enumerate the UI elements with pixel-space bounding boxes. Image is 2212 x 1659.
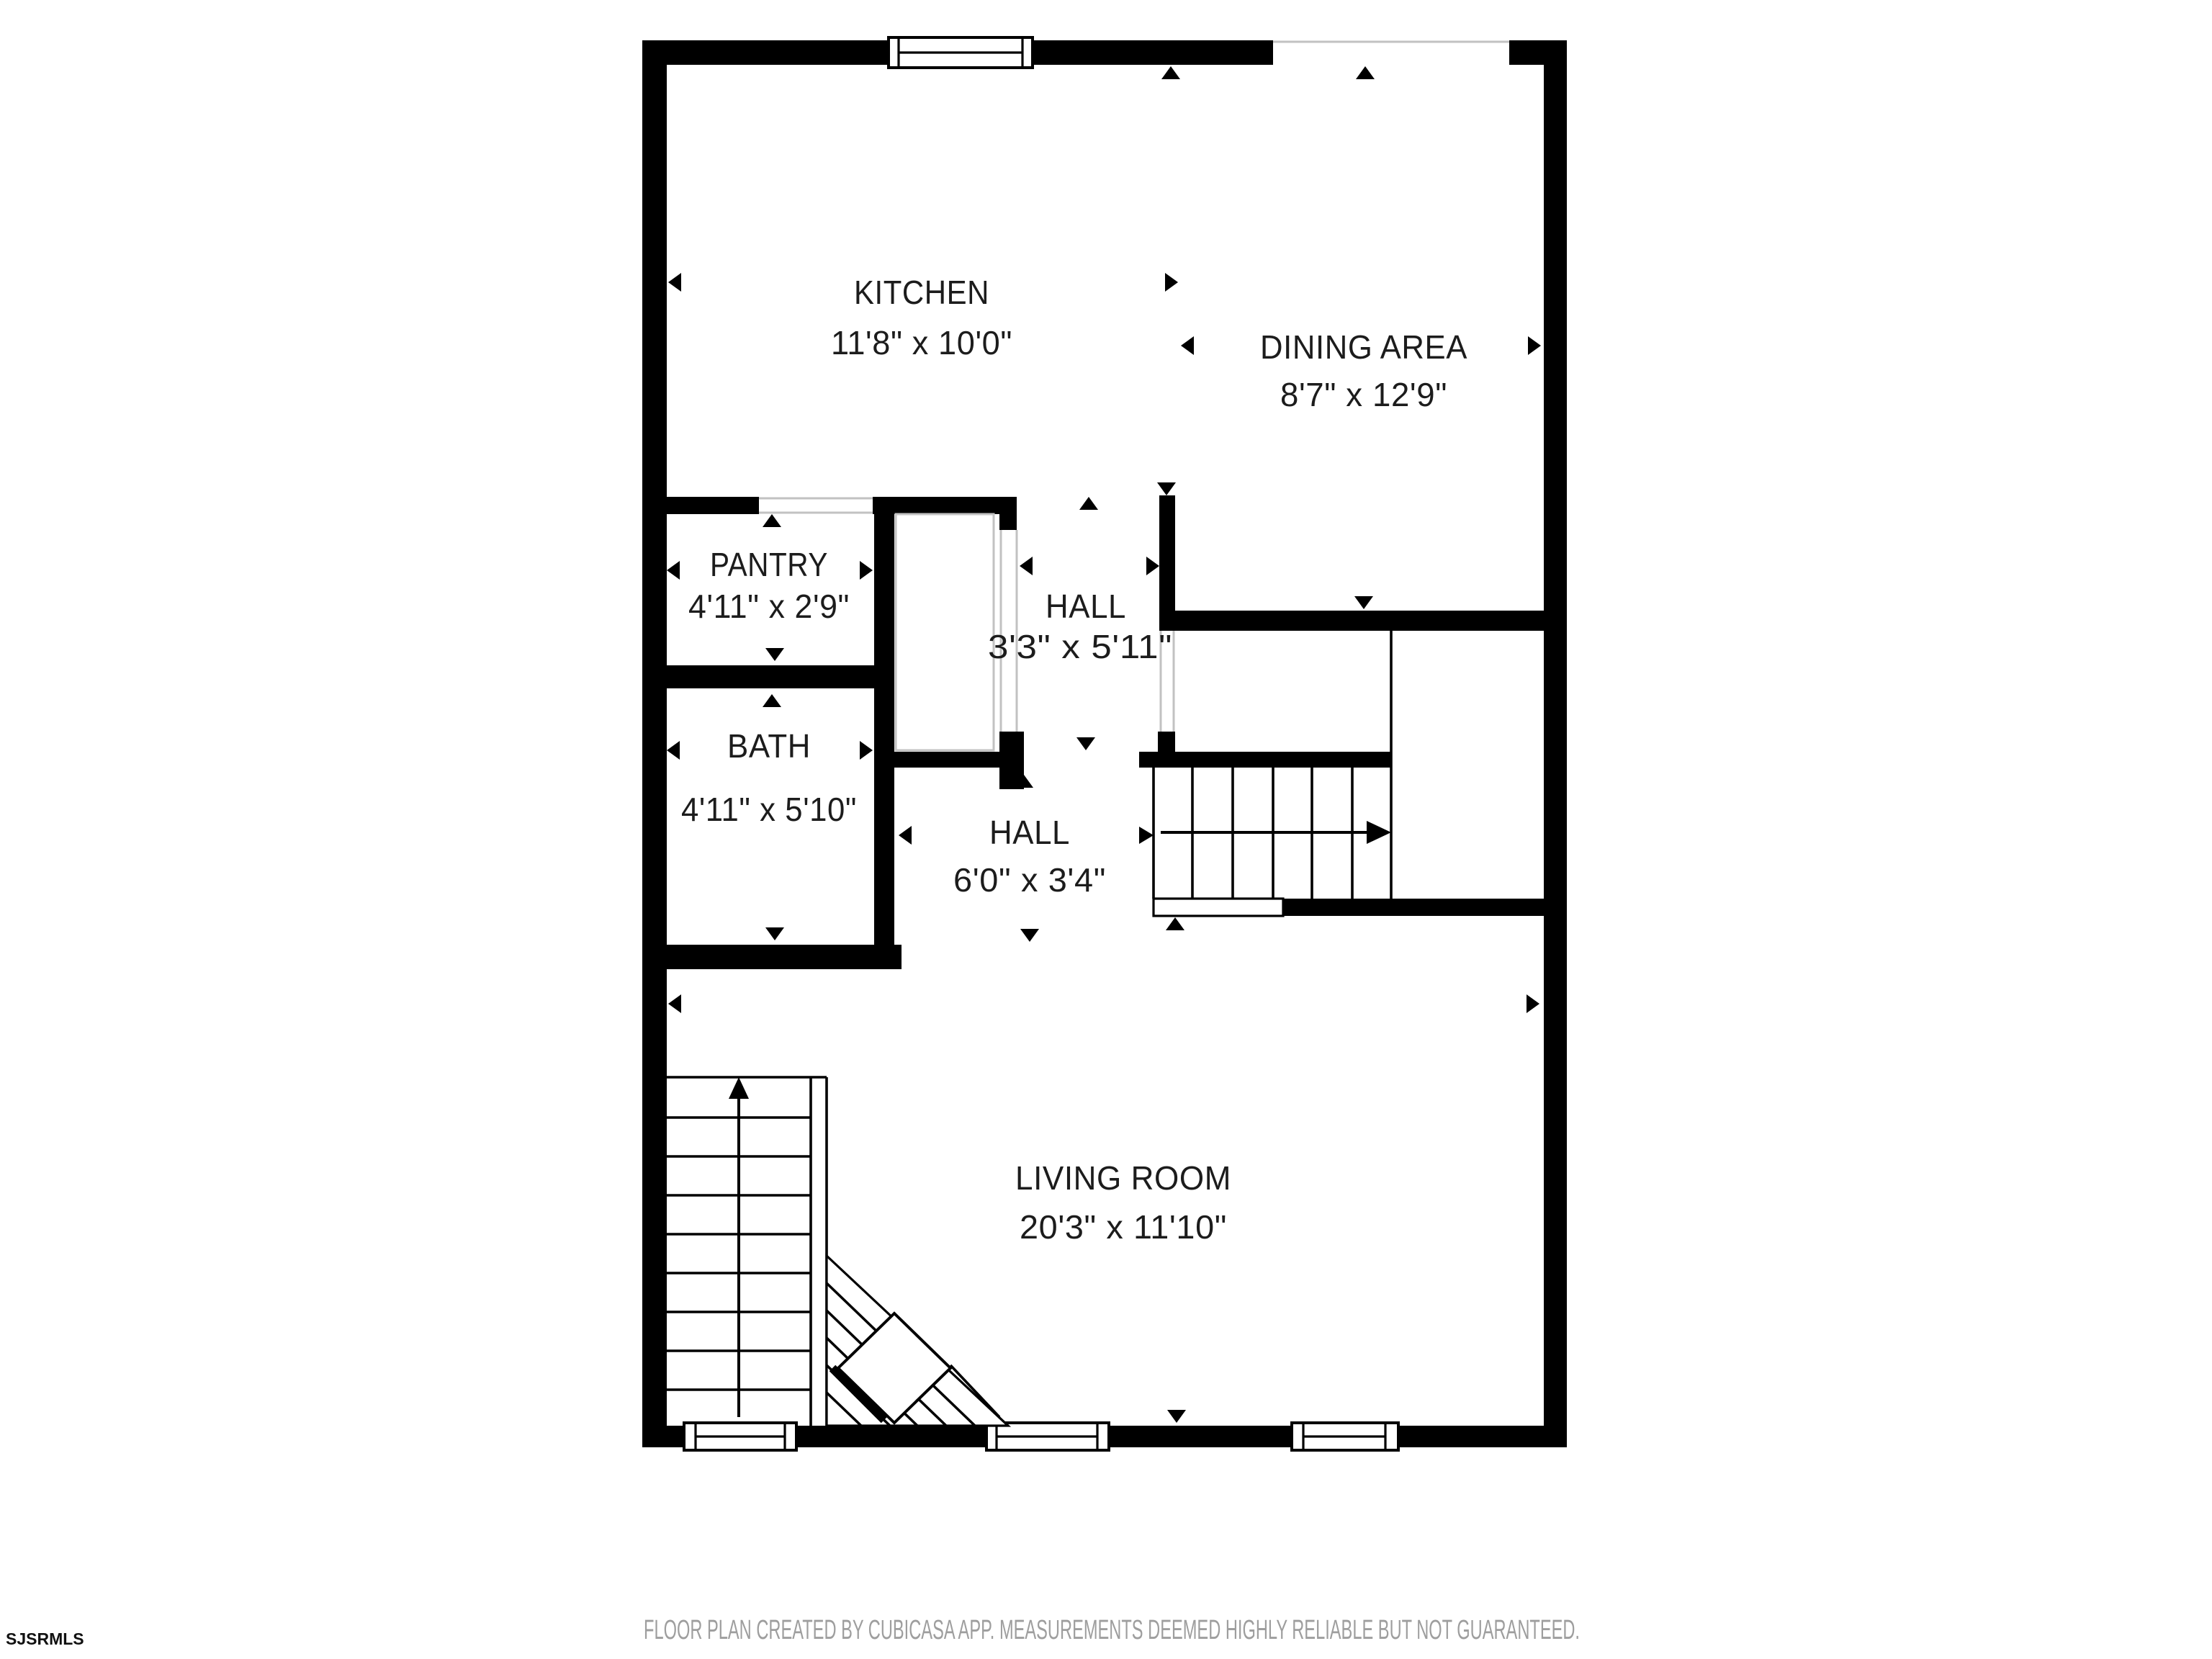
room-dims: 6'0" x 3'4"	[953, 861, 1106, 899]
arrow-up-icon	[1161, 66, 1180, 79]
room-dims: 4'11" x 2'9"	[688, 588, 850, 625]
window-symbol-bottom-left	[684, 1423, 796, 1450]
opening-lines	[759, 42, 1509, 899]
arrow-down-icon	[1167, 1410, 1186, 1423]
window-symbol-bottom-right	[1292, 1423, 1398, 1450]
wall-kitchen-divider-left	[642, 497, 759, 514]
arrow-down-icon	[765, 648, 784, 661]
arrow-right-icon	[1528, 336, 1541, 355]
room-name: BATH	[727, 727, 811, 765]
arrow-down-icon	[1354, 596, 1373, 609]
room-dims: 3'3" x 5'11"	[988, 628, 1172, 665]
room-name: KITCHEN	[854, 274, 989, 311]
room-dims: 20'3" x 11'10"	[1020, 1208, 1227, 1246]
arrow-up-icon	[1079, 497, 1098, 510]
room-dims: 4'11" x 5'10"	[681, 791, 857, 828]
room-name: DINING AREA	[1260, 328, 1467, 366]
closet-inner-outline	[896, 514, 994, 750]
arrow-up-icon	[1356, 66, 1375, 79]
arrow-right-icon	[860, 741, 873, 760]
arrow-down-icon	[765, 927, 784, 940]
wall-closet-bottom	[894, 752, 1024, 768]
room-name: PANTRY	[710, 546, 828, 583]
arrow-down-icon	[1157, 482, 1176, 495]
mls-watermark: SJSRMLS	[6, 1629, 84, 1648]
arrow-right-icon	[860, 561, 873, 580]
stair-base-opening	[1154, 899, 1283, 916]
room-label-pantry: PANTRY 4'11" x 2'9"	[688, 546, 850, 625]
floor-plan-image: KITCHEN 11'8" x 10'0" DINING AREA 8'7" x…	[0, 0, 2212, 1659]
wall-bath-bottom	[642, 945, 902, 969]
wall-dining-bottom	[1159, 611, 1544, 631]
floor-plan-svg: KITCHEN 11'8" x 10'0" DINING AREA 8'7" x…	[0, 0, 2212, 1659]
arrow-up-icon	[763, 694, 781, 707]
room-name: HALL	[1046, 588, 1126, 625]
arrow-right-icon	[1146, 557, 1159, 575]
footer-disclaimer: FLOOR PLAN CREATED BY CUBICASA APP. MEAS…	[644, 1615, 1580, 1645]
stair-winder	[827, 1256, 1008, 1426]
wall-closet-right-stub-top	[999, 497, 1017, 530]
arrow-up-icon	[1166, 917, 1184, 930]
room-name: HALL	[989, 814, 1070, 851]
arrow-left-icon	[667, 561, 680, 580]
room-label-hall-lower: HALL 6'0" x 3'4"	[953, 814, 1106, 899]
wall-pantry-bottom	[642, 665, 894, 688]
staircase-upper	[1139, 768, 1391, 916]
window-symbol-top	[889, 37, 1033, 68]
arrow-right-icon	[1139, 827, 1154, 844]
arrow-up-icon	[763, 514, 781, 527]
window-symbol-bottom-middle	[986, 1423, 1109, 1450]
room-dims: 11'8" x 10'0"	[831, 324, 1012, 361]
room-label-living-room: LIVING ROOM 20'3" x 11'10"	[1015, 1159, 1231, 1246]
room-name: LIVING ROOM	[1015, 1159, 1231, 1197]
arrow-down-icon	[1020, 929, 1039, 942]
arrow-left-icon	[1181, 336, 1194, 355]
arrow-down-icon	[1076, 737, 1095, 750]
wall-pantry-bath-right	[874, 497, 894, 969]
wall-exterior-right	[1544, 40, 1567, 1447]
wall-stair-top	[1139, 752, 1391, 768]
wall-hall-upper-right	[1159, 495, 1175, 631]
arrow-left-icon	[1020, 557, 1033, 575]
room-label-kitchen: KITCHEN 11'8" x 10'0"	[831, 274, 1012, 361]
staircase-main	[664, 1077, 1008, 1426]
room-dims: 8'7" x 12'9"	[1280, 376, 1447, 413]
wall-exterior-left	[642, 40, 667, 1447]
arrow-left-icon	[668, 994, 681, 1013]
arrow-right-icon	[1527, 994, 1539, 1013]
room-label-hall-upper: HALL 3'3" x 5'11"	[988, 588, 1172, 665]
stair-direction-arrow-icon	[1367, 821, 1391, 844]
wall-stair-bottom	[1283, 899, 1544, 916]
arrow-left-icon	[667, 741, 680, 760]
wall-hall-upper-right-stub	[1158, 732, 1175, 768]
arrow-left-icon	[668, 273, 681, 292]
arrow-left-icon	[899, 826, 912, 845]
stair-direction-arrow-icon	[729, 1077, 749, 1099]
arrow-right-icon	[1165, 273, 1178, 292]
room-label-bath: BATH 4'11" x 5'10"	[681, 727, 857, 828]
room-label-dining-area: DINING AREA 8'7" x 12'9"	[1260, 328, 1467, 413]
